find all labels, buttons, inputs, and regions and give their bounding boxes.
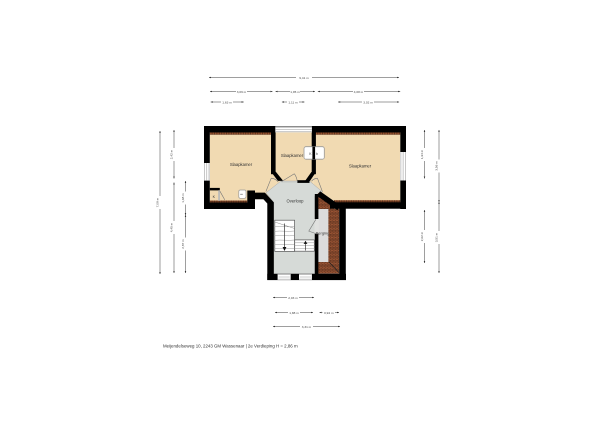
svg-text:3,51 m: 3,51 m <box>435 232 439 242</box>
svg-text:b: b <box>316 152 318 156</box>
svg-text:1,68 m: 1,68 m <box>181 193 185 203</box>
svg-text:0,94 m: 0,94 m <box>324 311 334 315</box>
svg-text:1,94 m: 1,94 m <box>420 149 424 159</box>
svg-text:Slaapkamer: Slaapkamer <box>230 162 253 167</box>
svg-text:2,42 m: 2,42 m <box>170 149 174 159</box>
svg-text:1,63 m: 1,63 m <box>222 100 232 104</box>
svg-text:3,02 m: 3,02 m <box>363 100 373 104</box>
svg-text:4,08 m: 4,08 m <box>354 90 364 94</box>
svg-text:4,45 m: 4,45 m <box>170 222 174 232</box>
svg-text:2,62 m: 2,62 m <box>420 231 424 241</box>
svg-text:2,87 m: 2,87 m <box>181 239 185 249</box>
svg-text:3,31 m: 3,31 m <box>302 325 312 329</box>
svg-text:Slaapkamer: Slaapkamer <box>349 164 372 169</box>
svg-text:3,56 m: 3,56 m <box>435 161 439 171</box>
svg-text:1,11 m: 1,11 m <box>288 100 298 104</box>
svg-text:Slaapkamer: Slaapkamer <box>281 153 304 158</box>
svg-text:2,03 m: 2,03 m <box>288 296 298 300</box>
svg-text:3,09 m: 3,09 m <box>237 90 247 94</box>
svg-text:9,41 m: 9,41 m <box>299 76 309 80</box>
svg-text:Overloop: Overloop <box>287 199 305 204</box>
svg-text:1,88 m: 1,88 m <box>289 311 299 315</box>
svg-text:7,08 m: 7,08 m <box>156 197 160 207</box>
svg-text:Berging: Berging <box>316 231 330 236</box>
svg-text:Meijendelseweg 10, 2243 GM Was: Meijendelseweg 10, 2243 GM Wassenaar | 2… <box>163 344 298 349</box>
svg-text:1,95 m: 1,95 m <box>290 90 300 94</box>
